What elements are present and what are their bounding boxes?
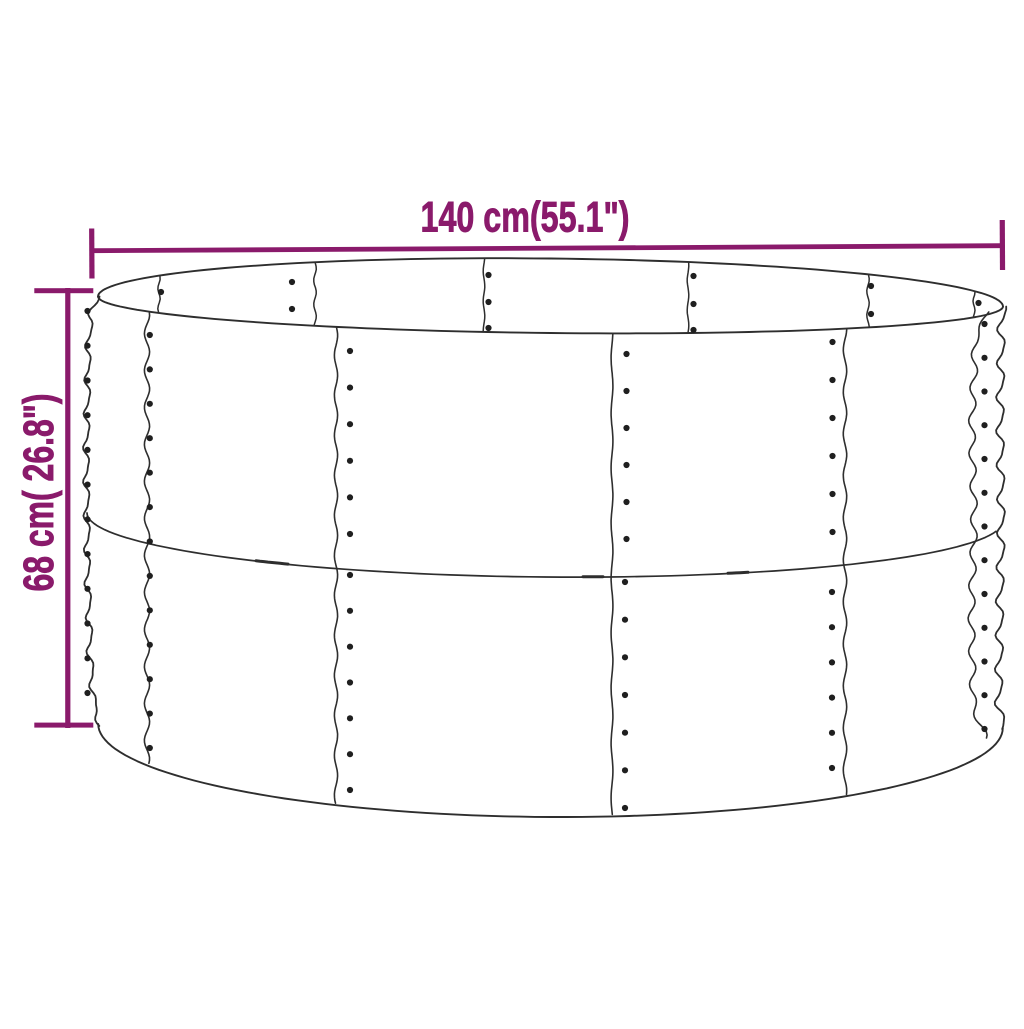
svg-text:140 cm(55.1"): 140 cm(55.1") (421, 194, 630, 242)
svg-text:68 cm( 26.8"): 68 cm( 26.8") (15, 394, 63, 592)
